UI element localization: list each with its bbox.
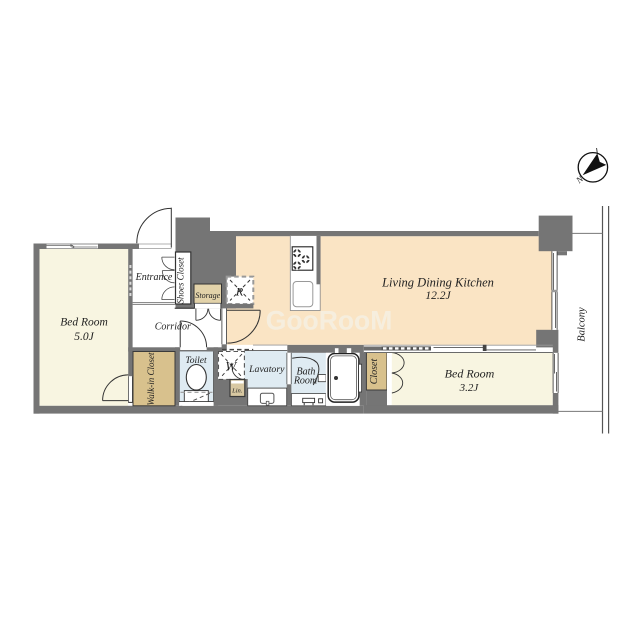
svg-text:Bed Room: Bed Room	[445, 367, 495, 381]
svg-text:Storage: Storage	[195, 291, 220, 300]
svg-text:GooRooM: GooRooM	[266, 306, 393, 336]
svg-text:Walk-in Closet: Walk-in Closet	[146, 352, 156, 405]
svg-text:3.2J: 3.2J	[459, 382, 480, 394]
svg-text:Entrance: Entrance	[135, 272, 173, 283]
svg-text:Toilet: Toilet	[185, 356, 207, 366]
svg-text:W: W	[225, 359, 237, 374]
svg-text:Room: Room	[293, 376, 317, 387]
svg-text:Corridor: Corridor	[155, 322, 191, 333]
svg-text:12.2J: 12.2J	[425, 290, 451, 302]
svg-text:Lin.: Lin.	[231, 388, 243, 395]
svg-text:Balcony: Balcony	[576, 307, 587, 342]
svg-text:Living Dining Kitchen: Living Dining Kitchen	[381, 276, 494, 290]
svg-text:Lavatory: Lavatory	[248, 364, 285, 375]
svg-text:5.0J: 5.0J	[74, 331, 94, 343]
svg-text:R: R	[235, 285, 244, 299]
svg-text:Bed Room: Bed Room	[60, 317, 108, 329]
svg-text:Closet: Closet	[369, 359, 380, 385]
svg-text:Shoes Closet: Shoes Closet	[175, 257, 185, 304]
